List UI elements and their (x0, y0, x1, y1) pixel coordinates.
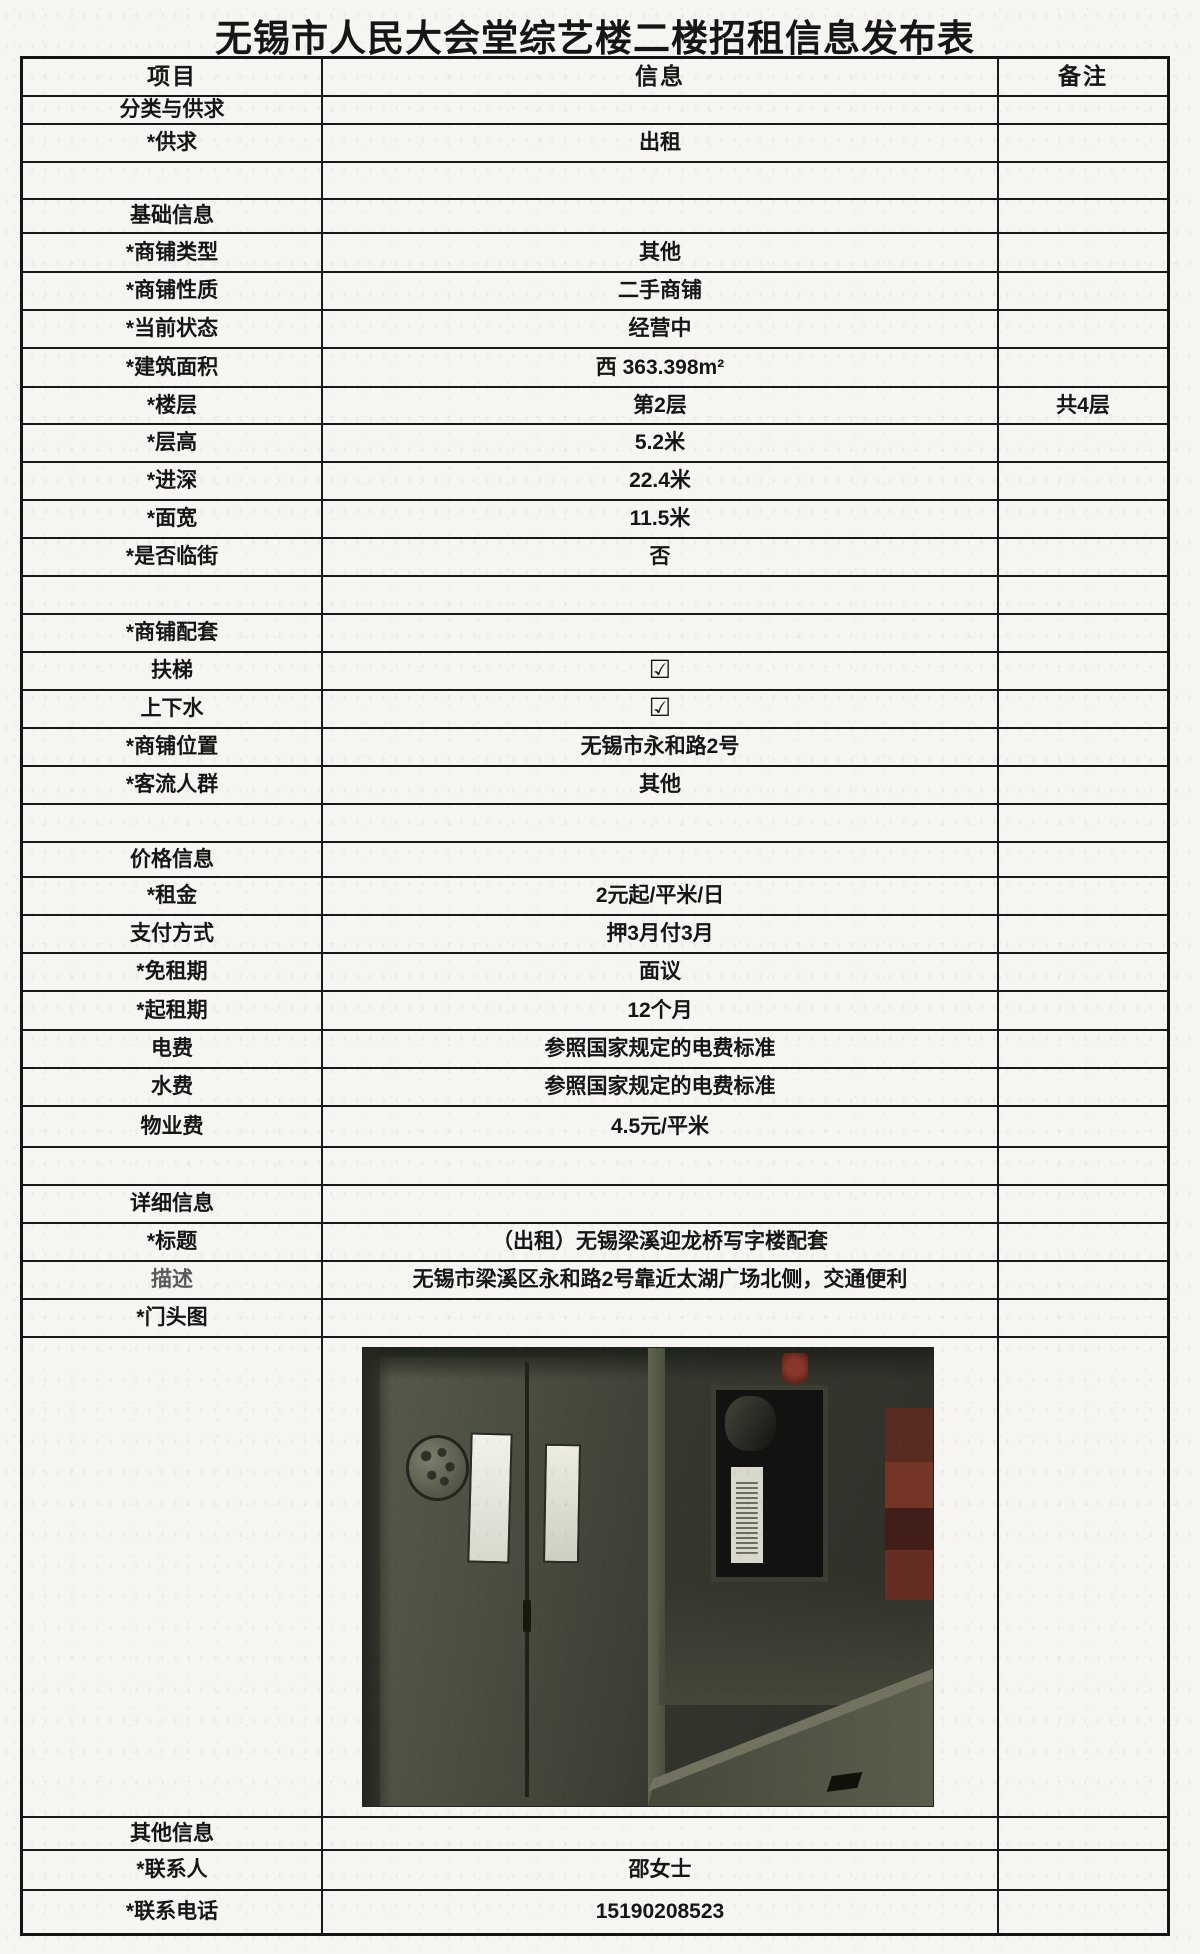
note-value (999, 425, 1167, 461)
table-row: *免租期面议 (23, 954, 1167, 992)
info-value: 12个月 (323, 992, 999, 1029)
info-value: 西 363.398m² (323, 349, 999, 386)
item-label: *商铺位置 (23, 729, 323, 765)
note-value (999, 767, 1167, 803)
item-label: *起租期 (23, 992, 323, 1029)
item-label: 物业费 (23, 1107, 323, 1146)
note-value (999, 1300, 1167, 1336)
item-label: 上下水 (23, 691, 323, 727)
info-value: 参照国家规定的电费标准 (323, 1031, 999, 1067)
table-row: *商铺位置无锡市永和路2号 (23, 729, 1167, 767)
table-row: *商铺性质二手商铺 (23, 273, 1167, 311)
note-value (999, 97, 1167, 123)
item-label: *进深 (23, 463, 323, 499)
item-label: *楼层 (23, 388, 323, 423)
info-value: 4.5元/平米 (323, 1107, 999, 1146)
info-value: 无锡市永和路2号 (323, 729, 999, 765)
note-value (999, 1262, 1167, 1298)
note-value (999, 1107, 1167, 1146)
table-row: *楼层第2层共4层 (23, 388, 1167, 425)
info-value: 邵女士 (323, 1851, 999, 1889)
info-value: 二手商铺 (323, 273, 999, 309)
info-value: 22.4米 (323, 463, 999, 499)
table-row: *供求出租 (23, 125, 1167, 163)
door-handle (523, 1600, 532, 1632)
info-value: （出租）无锡梁溪迎龙桥写字楼配套 (323, 1224, 999, 1260)
table-row: *当前状态经营中 (23, 311, 1167, 349)
note-value (999, 349, 1167, 386)
note-value (999, 1069, 1167, 1105)
table-row: *商铺类型其他 (23, 234, 1167, 273)
item-label (23, 1338, 323, 1816)
checkbox-checked-icon: ☑ (323, 653, 999, 689)
checkbox-checked-icon: ☑ (323, 691, 999, 727)
table-row: 上下水☑ (23, 691, 1167, 729)
info-value: 面议 (323, 954, 999, 990)
item-label: *层高 (23, 425, 323, 461)
item-label: *当前状态 (23, 311, 323, 347)
info-value (323, 200, 999, 232)
item-label: *标题 (23, 1224, 323, 1260)
table-row: *进深22.4米 (23, 463, 1167, 501)
note-value (999, 1224, 1167, 1260)
note-value (999, 805, 1167, 841)
column-header-note: 备注 (999, 59, 1167, 95)
info-value: 第2层 (323, 388, 999, 423)
photo-row (23, 1338, 1167, 1818)
info-value (323, 1186, 999, 1222)
note-value (999, 501, 1167, 537)
table-row: *标题（出租）无锡梁溪迎龙桥写字楼配套 (23, 1224, 1167, 1262)
table-row: 详细信息 (23, 1186, 1167, 1224)
info-table: 项目 信息 备注 分类与供求*供求出租基础信息*商铺类型其他*商铺性质二手商铺*… (20, 56, 1170, 1936)
photo-left-shadow (363, 1348, 392, 1806)
table-header-row: 项目 信息 备注 (23, 59, 1167, 97)
page-title: 无锡市人民大会堂综艺楼二楼招租信息发布表 (20, 8, 1170, 62)
photo-cell (323, 1338, 999, 1816)
info-value: 经营中 (323, 311, 999, 347)
note-value (999, 539, 1167, 575)
note-value (999, 463, 1167, 499)
display-board-poster (731, 1467, 763, 1563)
item-label: *商铺类型 (23, 234, 323, 271)
note-value (999, 1148, 1167, 1184)
column-header-info: 信息 (323, 59, 999, 95)
note-value (999, 200, 1167, 232)
item-label: *门头图 (23, 1300, 323, 1336)
item-label: 分类与供求 (23, 97, 323, 123)
info-value (323, 1148, 999, 1184)
spacer-row (23, 577, 1167, 615)
note-value (999, 916, 1167, 952)
item-label: *面宽 (23, 501, 323, 537)
right-wall-posters (885, 1408, 933, 1600)
item-label (23, 1148, 323, 1184)
item-label: *供求 (23, 125, 323, 161)
note-value (999, 1891, 1167, 1933)
info-value (323, 1818, 999, 1849)
table-row: *建筑面积西 363.398m² (23, 349, 1167, 388)
table-row: 其他信息 (23, 1818, 1167, 1851)
note-value (999, 163, 1167, 198)
note-value (999, 1338, 1167, 1816)
table-row: *联系人邵女士 (23, 1851, 1167, 1891)
note-value (999, 1031, 1167, 1067)
item-label: 详细信息 (23, 1186, 323, 1222)
info-value (323, 805, 999, 841)
item-label (23, 163, 323, 198)
info-value (323, 1300, 999, 1336)
note-value (999, 653, 1167, 689)
display-board-reflection (725, 1396, 776, 1451)
item-label: 电费 (23, 1031, 323, 1067)
item-label: *商铺性质 (23, 273, 323, 309)
double-door (380, 1357, 648, 1806)
table-row: *租金2元起/平米/日 (23, 878, 1167, 916)
info-value: 2元起/平米/日 (323, 878, 999, 914)
column-header-item: 项目 (23, 59, 323, 95)
table-row: *客流人群其他 (23, 767, 1167, 805)
item-label: *联系人 (23, 1851, 323, 1889)
info-value: 押3月付3月 (323, 916, 999, 952)
item-label: *是否临街 (23, 539, 323, 575)
note-value (999, 311, 1167, 347)
info-value: 15190208523 (323, 1891, 999, 1933)
info-value: 11.5米 (323, 501, 999, 537)
door-split-line (525, 1362, 529, 1797)
table-row: 描述无锡市梁溪区永和路2号靠近太湖广场北侧，交通便利 (23, 1262, 1167, 1300)
item-label: *免租期 (23, 954, 323, 990)
item-label: 水费 (23, 1069, 323, 1105)
note-value (999, 878, 1167, 914)
door-window-left (467, 1432, 512, 1563)
spacer-row (23, 163, 1167, 200)
table-row: *商铺配套 (23, 615, 1167, 653)
info-value: 否 (323, 539, 999, 575)
item-label: *联系电话 (23, 1891, 323, 1933)
door-round-sign (406, 1435, 469, 1501)
table-row: 扶梯☑ (23, 653, 1167, 691)
item-label: 描述 (23, 1262, 323, 1298)
item-label (23, 805, 323, 841)
info-value (323, 843, 999, 876)
scanned-document: { "page": { "title": "无锡市人民大会堂综艺楼二楼招租信息发… (0, 0, 1200, 1954)
table-row: *门头图 (23, 1300, 1167, 1338)
note-value (999, 691, 1167, 727)
info-value: 5.2米 (323, 425, 999, 461)
info-value (323, 577, 999, 613)
table-row: 支付方式押3月付3月 (23, 916, 1167, 954)
item-label: *客流人群 (23, 767, 323, 803)
table-row: 基础信息 (23, 200, 1167, 234)
table-row: 物业费4.5元/平米 (23, 1107, 1167, 1148)
table-row: *面宽11.5米 (23, 501, 1167, 539)
red-ornament (782, 1353, 808, 1390)
info-value (323, 97, 999, 123)
info-value: 出租 (323, 125, 999, 161)
note-value (999, 273, 1167, 309)
note-value (999, 1186, 1167, 1222)
info-value (323, 615, 999, 651)
door-window-right (543, 1444, 581, 1563)
info-value: 其他 (323, 767, 999, 803)
note-value (999, 843, 1167, 876)
note-value (999, 1851, 1167, 1889)
item-label: *租金 (23, 878, 323, 914)
spacer-row (23, 1148, 1167, 1186)
note-value (999, 577, 1167, 613)
table-row: 电费参照国家规定的电费标准 (23, 1031, 1167, 1069)
info-value (323, 163, 999, 198)
info-value: 参照国家规定的电费标准 (323, 1069, 999, 1105)
item-label (23, 577, 323, 613)
item-label: 支付方式 (23, 916, 323, 952)
note-value (999, 954, 1167, 990)
item-label: *商铺配套 (23, 615, 323, 651)
spacer-row (23, 805, 1167, 843)
table-row: *是否临街否 (23, 539, 1167, 577)
storefront-photo (363, 1348, 933, 1806)
table-row: 水费参照国家规定的电费标准 (23, 1069, 1167, 1107)
note-value (999, 992, 1167, 1029)
item-label: 其他信息 (23, 1818, 323, 1849)
note-value (999, 615, 1167, 651)
table-row: *层高5.2米 (23, 425, 1167, 463)
table-body: 分类与供求*供求出租基础信息*商铺类型其他*商铺性质二手商铺*当前状态经营中*建… (23, 97, 1167, 1933)
table-row: 分类与供求 (23, 97, 1167, 125)
note-value (999, 125, 1167, 161)
table-row: 价格信息 (23, 843, 1167, 878)
note-value (999, 234, 1167, 271)
note-value: 共4层 (999, 388, 1167, 423)
info-value: 其他 (323, 234, 999, 271)
item-label: 价格信息 (23, 843, 323, 876)
info-value: 无锡市梁溪区永和路2号靠近太湖广场北侧，交通便利 (323, 1262, 999, 1298)
note-value (999, 729, 1167, 765)
note-value (999, 1818, 1167, 1849)
table-row: *联系电话15190208523 (23, 1891, 1167, 1933)
item-label: 基础信息 (23, 200, 323, 232)
item-label: 扶梯 (23, 653, 323, 689)
item-label: *建筑面积 (23, 349, 323, 386)
table-row: *起租期12个月 (23, 992, 1167, 1031)
